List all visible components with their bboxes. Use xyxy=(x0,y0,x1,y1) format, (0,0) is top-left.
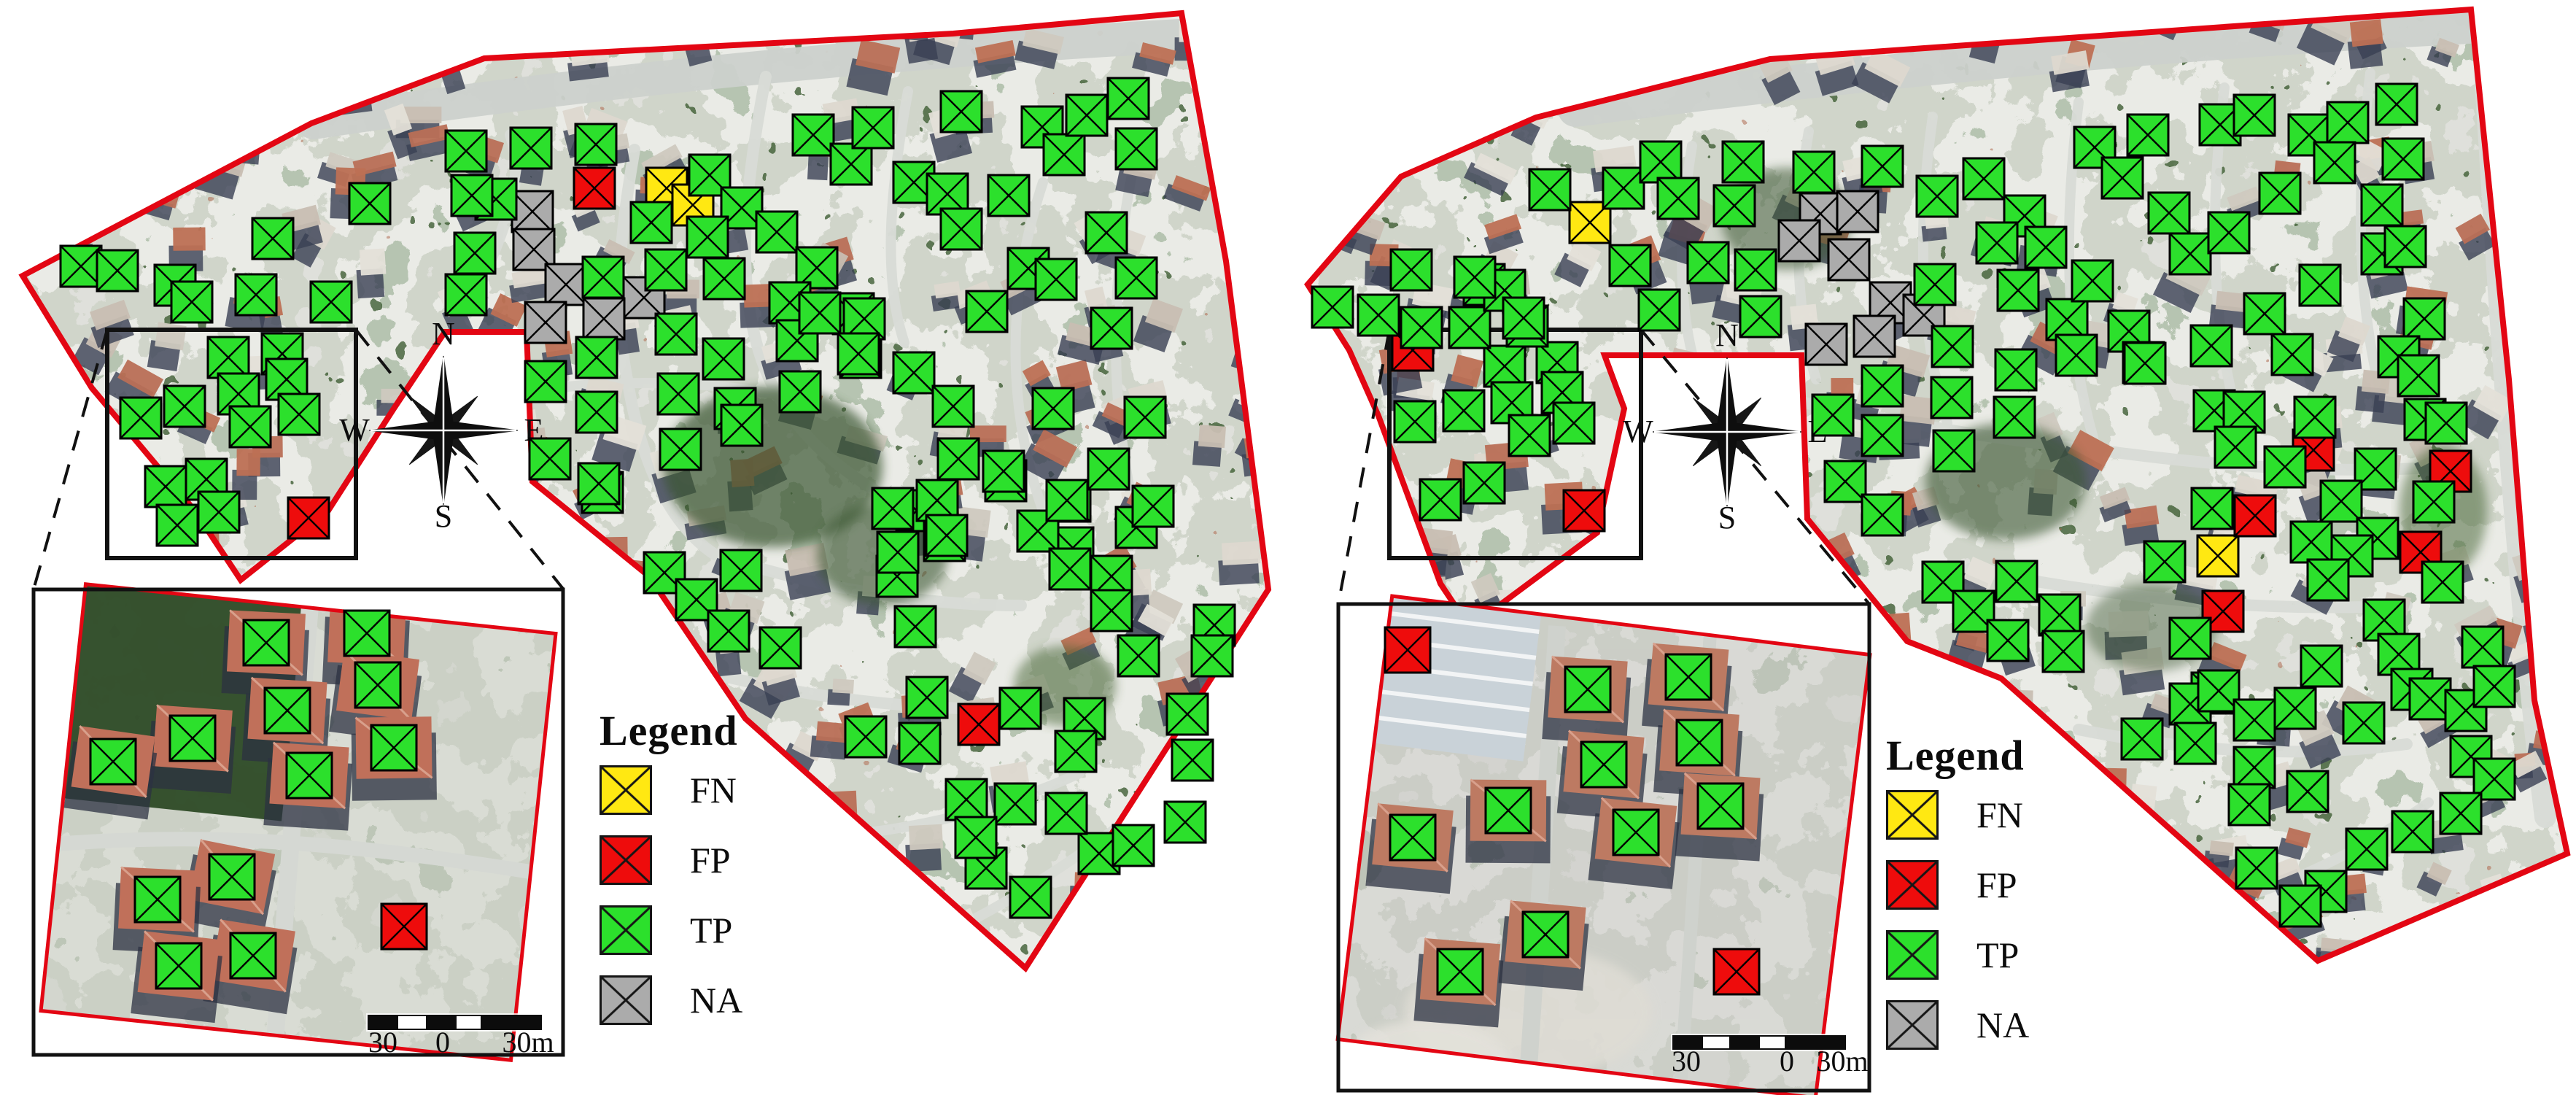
marker-tp xyxy=(877,532,918,573)
marker-tp xyxy=(2413,481,2454,522)
marker-tp xyxy=(2376,84,2417,125)
marker-tp xyxy=(2072,260,2113,301)
marker-tp xyxy=(311,282,352,322)
marker-tp xyxy=(578,463,619,504)
marker-tp xyxy=(631,202,672,243)
marker-tp xyxy=(198,492,239,533)
marker-tp xyxy=(525,361,566,402)
na-swatch-icon xyxy=(600,975,652,1025)
marker-tp xyxy=(2440,793,2481,834)
legend-item-na: NA xyxy=(600,975,775,1025)
scale-bar-label: 30 xyxy=(1672,1045,1701,1077)
legend-label-fp: FP xyxy=(1976,864,2017,906)
marker-tp xyxy=(208,337,249,378)
marker-tp xyxy=(1862,415,1903,456)
inset-photo xyxy=(4,557,592,1084)
fn-swatch-icon xyxy=(600,765,652,815)
compass-label-west: W xyxy=(1623,414,1653,449)
marker-tp xyxy=(576,337,617,378)
marker-tp xyxy=(2127,115,2168,155)
marker-tp xyxy=(2422,562,2463,603)
marker-tp xyxy=(1118,635,1159,676)
marker-na xyxy=(1779,220,1820,261)
marker-tp xyxy=(1000,688,1041,729)
marker-tp xyxy=(1666,654,1711,700)
marker-na xyxy=(1806,324,1847,365)
marker-tp xyxy=(575,124,616,165)
marker-tp xyxy=(2343,703,2384,743)
marker-tp xyxy=(1486,788,1531,833)
marker-tp xyxy=(2265,446,2305,487)
marker-tp xyxy=(2043,631,2084,672)
marker-tp xyxy=(1091,308,1132,349)
marker-fp xyxy=(958,704,999,745)
marker-tp xyxy=(1050,549,1090,589)
marker-tp xyxy=(1931,377,1972,418)
marker-tp xyxy=(157,505,198,546)
marker-tp xyxy=(760,627,801,668)
marker-tp xyxy=(2291,522,2332,562)
marker-tp xyxy=(1812,395,1853,436)
marker-tp xyxy=(1523,912,1568,957)
marker-tp xyxy=(1639,290,1680,330)
marker-tp xyxy=(170,716,215,761)
marker-tp xyxy=(941,209,982,249)
marker-tp xyxy=(1862,495,1903,535)
legend-title: Legend xyxy=(1886,731,2061,780)
legend-right: Legend FN FP TP NA xyxy=(1886,731,2061,1070)
marker-tp xyxy=(2144,541,2185,582)
marker-tp xyxy=(135,877,180,922)
marker-tp xyxy=(1529,169,1570,210)
marker-fp xyxy=(1564,490,1605,531)
marker-tp xyxy=(1658,178,1699,219)
marker-tp xyxy=(1086,212,1127,253)
marker-tp xyxy=(1358,295,1399,336)
marker-tp xyxy=(704,258,745,299)
marker-tp xyxy=(845,716,886,757)
marker-tp xyxy=(454,233,495,274)
marker-tp xyxy=(265,688,310,733)
marker-tp xyxy=(1394,401,1435,442)
marker-tp xyxy=(1454,257,1495,298)
marker-tp xyxy=(1033,388,1074,429)
marker-tp xyxy=(756,212,797,252)
marker-tp xyxy=(2294,397,2335,438)
marker-tp xyxy=(1438,949,1483,994)
legend-label-fn: FN xyxy=(690,769,737,811)
legend-label-fp: FP xyxy=(690,839,731,881)
marker-tp xyxy=(1963,158,2004,199)
marker-tp xyxy=(2056,335,2097,376)
marker-tp xyxy=(1113,825,1154,866)
marker-tp xyxy=(279,394,319,435)
marker-fp xyxy=(288,498,329,538)
marker-fp xyxy=(2235,495,2276,536)
marker-tp xyxy=(2362,185,2402,225)
legend-left: Legend FN FP TP NA xyxy=(600,706,775,1045)
marker-tp xyxy=(907,677,947,718)
marker-tp xyxy=(1172,740,1213,781)
marker-tp xyxy=(1046,793,1087,834)
marker-tp xyxy=(1125,397,1165,438)
marker-tp xyxy=(576,392,617,433)
compass-label-south: S xyxy=(1718,500,1736,535)
figure-building-detection-maps: 30030m NSWE xyxy=(0,0,2576,1095)
marker-tp xyxy=(1565,667,1610,712)
marker-tp xyxy=(658,374,699,414)
marker-tp xyxy=(120,398,161,438)
marker-fp xyxy=(1714,949,1759,994)
marker-tp xyxy=(1055,731,1096,772)
marker-na xyxy=(1837,191,1878,232)
marker-tp xyxy=(171,282,212,322)
legend-item-fp: FP xyxy=(1886,860,2061,910)
legend-item-fn: FN xyxy=(600,765,775,815)
marker-tp xyxy=(988,175,1029,216)
marker-tp xyxy=(2280,886,2321,926)
marker-tp xyxy=(1553,403,1594,444)
marker-tp xyxy=(1917,176,1958,217)
marker-tp xyxy=(230,933,276,978)
marker-tp xyxy=(955,817,996,858)
marker-tp xyxy=(1688,242,1729,283)
marker-tp xyxy=(2404,298,2445,339)
legend-item-fp: FP xyxy=(600,835,775,885)
marker-tp xyxy=(893,352,934,393)
legend-label-tp: TP xyxy=(690,909,732,951)
map-figure-canvas: 30030m NSWE xyxy=(0,0,2576,1095)
marker-tp xyxy=(1603,168,1644,209)
zoom-inset-left: 30030m xyxy=(4,557,592,1084)
marker-tp xyxy=(1401,307,1442,348)
marker-tp xyxy=(1047,480,1087,521)
marker-tp xyxy=(1723,142,1764,182)
legend-item-fn: FN xyxy=(1886,790,2061,840)
marker-tp xyxy=(1677,720,1722,765)
marker-tp xyxy=(938,438,979,479)
marker-tp xyxy=(1091,590,1132,631)
marker-tp xyxy=(941,91,982,132)
fp-swatch-icon xyxy=(1886,860,1939,910)
marker-tp xyxy=(2234,95,2275,136)
marker-tp xyxy=(1391,249,1432,290)
marker-fn xyxy=(2197,535,2238,576)
marker-tp xyxy=(1914,264,1955,305)
marker-tp xyxy=(2191,325,2232,366)
marker-fp xyxy=(1385,627,1430,673)
marker-tp xyxy=(164,386,205,427)
marker-tp xyxy=(1484,346,1525,387)
marker-tp xyxy=(244,620,289,665)
tp-swatch-icon xyxy=(1886,930,1939,980)
marker-tp xyxy=(2039,595,2080,635)
fp-swatch-icon xyxy=(600,835,652,885)
marker-na xyxy=(546,264,586,305)
marker-tp xyxy=(721,405,762,446)
legend-item-na: NA xyxy=(1886,1000,2061,1050)
marker-tp xyxy=(1740,296,1781,337)
marker-tp xyxy=(966,291,1007,332)
marker-tp xyxy=(2300,265,2340,306)
marker-tp xyxy=(2346,829,2387,870)
marker-tp xyxy=(793,115,834,155)
marker-tp xyxy=(831,144,872,185)
marker-tp xyxy=(344,611,389,656)
marker-tp xyxy=(451,175,492,216)
marker-tp xyxy=(2125,343,2165,384)
marker-tp xyxy=(838,333,879,374)
marker-tp xyxy=(1932,326,1973,367)
marker-tp xyxy=(2149,193,2189,233)
marker-tp xyxy=(61,246,101,287)
marker-tp xyxy=(1116,128,1157,169)
marker-na xyxy=(525,302,566,343)
marker-tp xyxy=(1581,742,1626,787)
marker-tp xyxy=(446,131,486,171)
marker-tp xyxy=(1390,815,1435,860)
marker-tp xyxy=(1994,397,2035,438)
marker-tp xyxy=(2462,627,2503,668)
marker-tp xyxy=(355,662,400,708)
marker-tp xyxy=(1640,142,1681,182)
marker-na xyxy=(1828,239,1869,280)
legend-label-fn: FN xyxy=(1976,794,2023,836)
marker-tp xyxy=(1793,152,1834,193)
marker-tp xyxy=(2287,771,2328,812)
marker-tp xyxy=(2392,811,2433,852)
marker-fp xyxy=(381,904,427,949)
marker-tp xyxy=(656,314,697,355)
marker-tp xyxy=(2025,227,2066,268)
marker-tp xyxy=(2170,233,2211,274)
marker-tp xyxy=(2301,646,2342,686)
scale-bar-label: 0 xyxy=(1780,1045,1794,1077)
marker-tp xyxy=(983,451,1024,492)
marker-tp xyxy=(1987,620,2028,661)
compass-label-south: S xyxy=(435,498,452,534)
marker-tp xyxy=(895,606,936,647)
dashed-connector-line xyxy=(34,330,107,589)
marker-tp xyxy=(2236,848,2277,889)
marker-tp xyxy=(156,943,201,988)
marker-tp xyxy=(708,611,749,651)
marker-tp xyxy=(899,723,940,764)
marker-tp xyxy=(236,274,276,315)
marker-tp xyxy=(853,107,893,148)
legend-item-tp: TP xyxy=(600,905,775,955)
marker-fp xyxy=(574,168,615,209)
marker-tp xyxy=(287,753,332,798)
marker-tp xyxy=(371,725,416,770)
marker-tp xyxy=(703,338,744,379)
marker-tp xyxy=(1449,307,1490,348)
legend-label-tp: TP xyxy=(1976,934,2019,976)
marker-tp xyxy=(1862,365,1903,406)
marker-na xyxy=(583,298,624,339)
marker-na xyxy=(1854,316,1895,357)
marker-tp xyxy=(583,257,624,298)
marker-tp xyxy=(1088,449,1129,490)
marker-tp xyxy=(2215,427,2256,468)
marker-tp xyxy=(2383,139,2424,179)
marker-na xyxy=(512,191,553,232)
scale-bar-label: 30m xyxy=(1816,1045,1868,1077)
marker-tp xyxy=(721,550,761,591)
marker-tp xyxy=(2192,488,2232,529)
marker-tp xyxy=(1503,298,1544,338)
marker-tp xyxy=(995,783,1036,824)
legend-label-na: NA xyxy=(690,979,742,1021)
fn-swatch-icon xyxy=(1886,790,1939,840)
marker-tp xyxy=(209,854,255,899)
marker-tp xyxy=(2426,403,2467,444)
compass-label-west: W xyxy=(339,412,370,448)
marker-tp xyxy=(687,217,728,258)
marker-tp xyxy=(1714,185,1755,226)
marker-tp xyxy=(1735,249,1776,290)
marker-tp xyxy=(2234,700,2275,740)
marker-tp xyxy=(872,488,913,529)
legend-title: Legend xyxy=(600,706,775,755)
marker-tp xyxy=(1933,430,1974,471)
marker-tp xyxy=(1698,783,1743,829)
marker-tp xyxy=(2321,481,2362,522)
marker-tp xyxy=(252,218,293,259)
marker-tp xyxy=(1862,146,1903,187)
marker-tp xyxy=(2398,355,2439,396)
marker-tp xyxy=(2308,560,2348,600)
marker-tp xyxy=(1998,270,2038,311)
marker-tp xyxy=(145,466,186,507)
marker-tp xyxy=(2170,618,2211,659)
marker-tp xyxy=(349,183,390,224)
marker-tp xyxy=(2275,688,2316,729)
marker-tp xyxy=(1167,694,1208,735)
marker-tp xyxy=(529,438,570,479)
marker-tp xyxy=(799,293,840,333)
marker-tp xyxy=(90,739,136,784)
marker-tp xyxy=(1133,486,1173,527)
marker-tp xyxy=(2385,226,2426,267)
na-swatch-icon xyxy=(1886,1000,1939,1050)
marker-tp xyxy=(1443,390,1484,431)
marker-tp xyxy=(1312,287,1353,328)
marker-tp xyxy=(1192,635,1233,676)
marker-tp xyxy=(1108,78,1149,119)
marker-tp xyxy=(1066,95,1107,136)
marker-tp xyxy=(1165,802,1206,843)
marker-tp xyxy=(2122,719,2162,759)
marker-tp xyxy=(660,429,701,470)
marker-tp xyxy=(780,371,820,412)
marker-tp xyxy=(2474,666,2515,707)
marker-tp xyxy=(2175,723,2216,764)
marker-tp xyxy=(2234,747,2275,788)
marker-tp xyxy=(2327,102,2368,143)
legend-label-na: NA xyxy=(1976,1004,2029,1046)
marker-tp xyxy=(1420,479,1461,520)
marker-tp xyxy=(97,250,138,291)
marker-tp xyxy=(946,779,987,820)
marker-tp xyxy=(1976,223,2017,263)
marker-tp xyxy=(511,128,551,169)
compass-label-north: N xyxy=(1715,317,1739,353)
legend-item-tp: TP xyxy=(1886,930,2061,980)
marker-tp xyxy=(2244,293,2285,334)
marker-tp xyxy=(1613,810,1659,855)
marker-tp xyxy=(230,406,271,447)
marker-tp xyxy=(1610,245,1650,286)
marker-tp xyxy=(926,515,967,556)
marker-tp xyxy=(2208,212,2249,253)
marker-tp xyxy=(1464,463,1505,503)
marker-tp xyxy=(1044,134,1085,175)
compass-label-north: N xyxy=(432,316,455,352)
marker-tp xyxy=(1996,561,2037,602)
marker-tp xyxy=(1825,461,1866,502)
marker-tp xyxy=(2102,158,2143,198)
marker-tp xyxy=(446,274,486,315)
marker-tp xyxy=(1116,258,1157,298)
marker-tp xyxy=(2314,142,2355,183)
marker-tp xyxy=(1995,349,2036,390)
zoom-inset-right: 30030m xyxy=(1309,575,1898,1095)
marker-tp xyxy=(1010,877,1051,918)
marker-tp xyxy=(1036,259,1076,300)
marker-tp xyxy=(645,249,686,290)
marker-tp xyxy=(2259,173,2300,214)
tp-swatch-icon xyxy=(600,905,652,955)
marker-tp xyxy=(2229,784,2270,825)
marker-tp xyxy=(933,386,974,427)
marker-tp xyxy=(1509,415,1550,456)
marker-tp xyxy=(2272,334,2313,375)
